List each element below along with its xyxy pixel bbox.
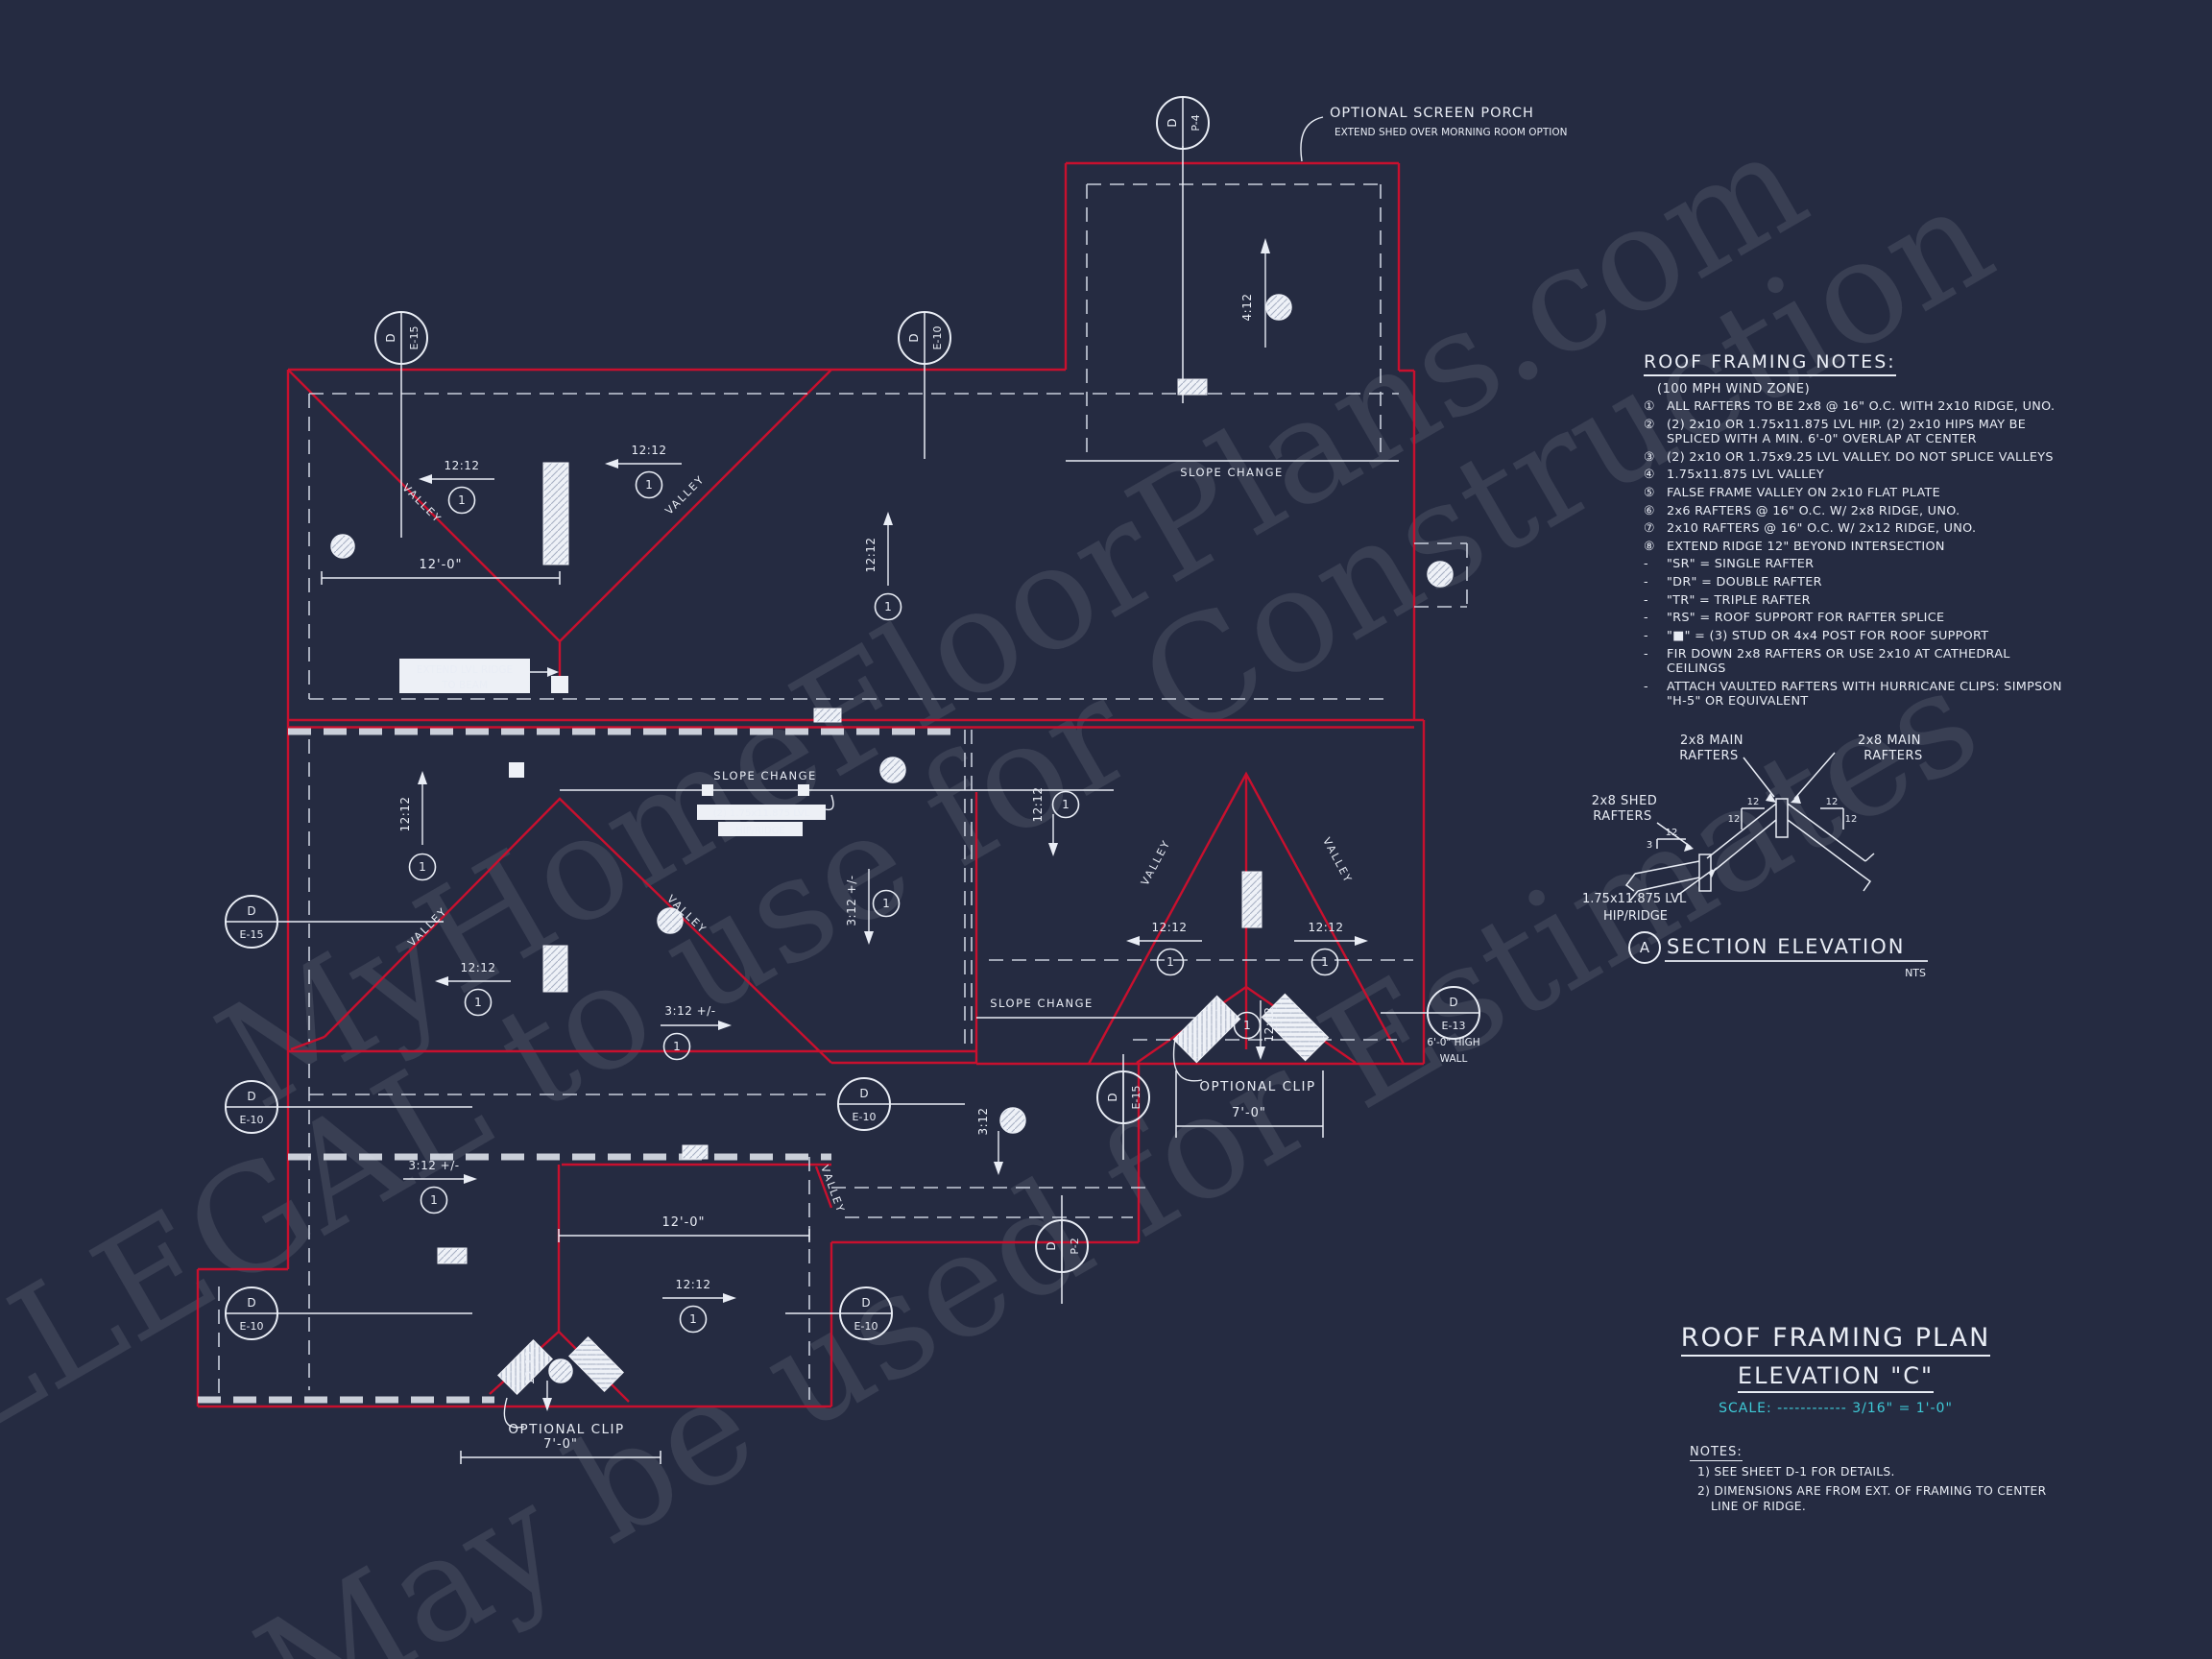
slope-change-label: SLOPE CHANGE xyxy=(1180,466,1284,479)
slope-label: 12:12 xyxy=(675,1278,710,1291)
note-item: -"TR" = TRIPLE RAFTER xyxy=(1644,593,2068,609)
svg-text:1: 1 xyxy=(1166,955,1174,969)
callout-d-p4: DP-4 xyxy=(1157,97,1209,149)
svg-text:E-10: E-10 xyxy=(240,1320,264,1333)
svg-text:D: D xyxy=(384,333,397,342)
svg-text:1: 1 xyxy=(419,860,426,874)
callout-d-e10: DE-10 xyxy=(899,312,950,364)
svg-text:D: D xyxy=(859,1087,868,1100)
porch-subtitle: EXTEND SHED OVER MORNING ROOM OPTION xyxy=(1334,127,1567,138)
slope-label: 4:12 xyxy=(1240,294,1254,322)
svg-text:HIP/RIDGE: HIP/RIDGE xyxy=(735,826,785,836)
svg-text:E-10: E-10 xyxy=(931,326,944,350)
slope-label: 12:12 xyxy=(631,444,666,457)
svg-text:12: 12 xyxy=(1666,828,1678,838)
title-block: ROOF FRAMING PLAN ELEVATION "C" SCALE: -… xyxy=(1605,1323,2066,1515)
note-item: -"DR" = DOUBLE RAFTER xyxy=(1644,575,2068,590)
svg-text:12: 12 xyxy=(1845,814,1858,825)
sheet-subtitle: ELEVATION "C" xyxy=(1738,1362,1934,1393)
section-scale: NTS xyxy=(1905,967,1926,979)
note-item: ⑤FALSE FRAME VALLEY ON 2x10 FLAT PLATE xyxy=(1644,486,2068,501)
callout-d-e10: DE-10 xyxy=(226,1287,277,1339)
callout-d-e13: DE-13 xyxy=(1428,987,1479,1039)
screen-porch-note: OPTIONAL SCREEN PORCH EXTEND SHED OVER M… xyxy=(1330,106,1567,138)
main-rafters-right-label: 2x8 MAIN xyxy=(1858,733,1921,748)
svg-text:D: D xyxy=(1166,118,1179,127)
callout-d-e15: DE-15 xyxy=(375,312,427,364)
svg-text:12: 12 xyxy=(1747,797,1760,807)
svg-text:1: 1 xyxy=(645,478,653,492)
slope-label: 12:12 xyxy=(398,796,412,831)
slope-label: 3:12 +/- xyxy=(664,1004,715,1018)
slope-label: 12:12 xyxy=(1031,786,1045,822)
extend-ridge-label: EXTEND LVL RIDGE TO BEAM xyxy=(399,659,530,693)
svg-text:12: 12 xyxy=(1826,797,1839,807)
valley-label: VALLEY xyxy=(1320,835,1355,885)
sheet-scale: SCALE: ------------ 3/16" = 1'-0" xyxy=(1605,1401,2066,1416)
note-item: ⑦2x10 RAFTERS @ 16" O.C. W/ 2x12 RIDGE, … xyxy=(1644,521,2068,537)
slope-label: 12:12 xyxy=(1308,921,1343,934)
valley-label: VALLEY xyxy=(662,472,707,517)
note-item: -"■" = (3) STUD OR 4x4 POST FOR ROOF SUP… xyxy=(1644,629,2068,644)
svg-text:1: 1 xyxy=(474,996,482,1009)
svg-text:P-2: P-2 xyxy=(1069,1238,1081,1254)
svg-text:TO BEAM: TO BEAM xyxy=(441,680,488,691)
note-item: -"SR" = SINGLE RAFTER xyxy=(1644,557,2068,572)
svg-text:12: 12 xyxy=(1728,814,1741,825)
svg-text:D: D xyxy=(247,1090,255,1103)
roof-framing-notes: ROOF FRAMING NOTES: (100 MPH WIND ZONE) … xyxy=(1644,351,2068,709)
notes-title: ROOF FRAMING NOTES: xyxy=(1644,351,1896,376)
svg-text:1: 1 xyxy=(673,1040,681,1053)
porch-title: OPTIONAL SCREEN PORCH xyxy=(1330,106,1534,121)
slope-change-label: SLOPE CHANGE xyxy=(713,769,817,782)
svg-text:D: D xyxy=(247,1296,255,1310)
svg-text:1: 1 xyxy=(882,897,890,910)
svg-text:D: D xyxy=(1106,1093,1119,1101)
section-elevation-detail: 2x8 MAIN RAFTERS 2x8 MAIN RAFTERS 2x8 SH… xyxy=(1563,712,2043,1010)
slope-label: 12:12 xyxy=(1151,921,1187,934)
slope-label: 12:12 xyxy=(523,1349,537,1384)
svg-text:3: 3 xyxy=(1647,840,1652,851)
valley-label: VALLEY xyxy=(399,481,444,525)
lvl-hip-ridge-label: 1.75x11.875 LVL xyxy=(1582,892,1687,906)
callout-d-e15: DE-15 xyxy=(1097,1071,1149,1123)
slope-label: 12:12 xyxy=(460,961,495,974)
note-item: -ATTACH VAULTED RAFTERS WITH HURRICANE C… xyxy=(1644,680,2068,709)
svg-text:P-4: P-4 xyxy=(1190,114,1202,131)
svg-text:E-15: E-15 xyxy=(1130,1086,1142,1110)
slope-label: 12:12 xyxy=(444,459,479,472)
svg-text:E-15: E-15 xyxy=(408,326,421,350)
slope-label: 12:12 xyxy=(1262,1006,1276,1042)
slope-label: 3:12 +/- xyxy=(845,875,858,926)
note-item: ②(2) 2x10 OR 1.75x11.875 LVL HIP. (2) 2x… xyxy=(1644,418,2068,447)
shed-rafters-label: RAFTERS xyxy=(1593,809,1652,824)
note-item: -FIR DOWN 2x8 RAFTERS OR USE 2x10 AT CAT… xyxy=(1644,647,2068,677)
dimension: 12'-0" xyxy=(661,1215,705,1230)
optional-clip-label: OPTIONAL CLIP xyxy=(1199,1079,1315,1094)
callout-d-p2: DP-2 xyxy=(1036,1220,1088,1272)
svg-text:D: D xyxy=(861,1296,870,1310)
section-callout-letter: A xyxy=(1640,939,1650,956)
lvl-hip-ridge-label: HIP/RIDGE xyxy=(1603,909,1668,924)
shed-rafters-label: 2x8 SHED xyxy=(1592,794,1658,808)
callout-d-e10: DE-10 xyxy=(838,1078,890,1130)
slope-change-label: SLOPE CHANGE xyxy=(990,997,1094,1010)
note-item: ③(2) 2x10 OR 1.75x9.25 LVL VALLEY. DO NO… xyxy=(1644,450,2068,466)
svg-text:1: 1 xyxy=(1062,798,1070,811)
svg-text:E-13: E-13 xyxy=(1442,1020,1466,1032)
svg-text:E-10: E-10 xyxy=(854,1320,878,1333)
svg-text:1: 1 xyxy=(1321,955,1329,969)
valley-label: VALLEY xyxy=(818,1164,847,1215)
section-title: SECTION ELEVATION xyxy=(1667,935,1905,958)
sheet-note: 2) DIMENSIONS ARE FROM EXT. OF FRAMING T… xyxy=(1690,1484,2066,1515)
svg-text:D: D xyxy=(1449,996,1457,1009)
slope-label: 12:12 xyxy=(864,537,878,572)
dimension: 7'-0" xyxy=(1232,1106,1266,1120)
note-item: -"RS" = ROOF SUPPORT FOR RAFTER SPLICE xyxy=(1644,611,2068,626)
callout-d-e15: DE-15 xyxy=(226,896,277,948)
valley-label: VALLEY xyxy=(1139,837,1173,887)
svg-text:1: 1 xyxy=(1243,1019,1251,1032)
sheet-title: ROOF FRAMING PLAN xyxy=(1681,1323,1991,1357)
svg-text:E-15: E-15 xyxy=(240,928,264,941)
callout-d-e10: DE-10 xyxy=(226,1081,277,1133)
sheet-note: 1) SEE SHEET D-1 FOR DETAILS. xyxy=(1690,1465,2066,1480)
svg-text:WALL: WALL xyxy=(1440,1053,1468,1065)
callout-d-e10: DE-10 xyxy=(840,1287,892,1339)
svg-text:(2) 1.75x11.875 LVL: (2) 1.75x11.875 LVL xyxy=(713,808,810,819)
sheet-notes-title: NOTES: xyxy=(1690,1445,1743,1461)
note-item: ④1.75x11.875 LVL VALLEY xyxy=(1644,468,2068,483)
slope-label: 3:12 +/- xyxy=(408,1159,459,1172)
svg-text:D: D xyxy=(907,333,921,342)
main-rafters-right-label: RAFTERS xyxy=(1863,749,1923,763)
main-rafters-left-label: 2x8 MAIN xyxy=(1680,733,1743,748)
optional-clip-label: OPTIONAL CLIP xyxy=(508,1422,624,1437)
dimension: 7'-0" xyxy=(543,1437,578,1452)
note-item: ⑥2x6 RAFTERS @ 16" O.C. W/ 2x8 RIDGE, UN… xyxy=(1644,504,2068,519)
notes-subtitle: (100 MPH WIND ZONE) xyxy=(1657,382,2068,397)
dimension: 12'-0" xyxy=(419,558,462,572)
blueprint-sheet: MyHomeFloorPlans.com ILLEGAL to use for … xyxy=(0,0,2212,1659)
svg-text:1: 1 xyxy=(458,493,466,507)
svg-text:D: D xyxy=(1045,1241,1058,1250)
svg-text:D: D xyxy=(247,904,255,918)
svg-text:E-10: E-10 xyxy=(240,1114,264,1126)
svg-text:EXTEND LVL RIDGE: EXTEND LVL RIDGE xyxy=(417,664,513,676)
svg-text:1: 1 xyxy=(689,1312,697,1326)
note-item: ①ALL RAFTERS TO BE 2x8 @ 16" O.C. WITH 2… xyxy=(1644,399,2068,415)
svg-text:1: 1 xyxy=(884,600,892,613)
svg-text:E-10: E-10 xyxy=(853,1111,877,1123)
main-rafters-left-label: RAFTERS xyxy=(1679,749,1739,763)
note-item: ⑧EXTEND RIDGE 12" BEYOND INTERSECTION xyxy=(1644,540,2068,555)
svg-text:1: 1 xyxy=(430,1193,438,1207)
slope-label: 3:12 xyxy=(976,1108,990,1136)
sheet-notes: NOTES: 1) SEE SHEET D-1 FOR DETAILS. 2) … xyxy=(1605,1441,2066,1515)
